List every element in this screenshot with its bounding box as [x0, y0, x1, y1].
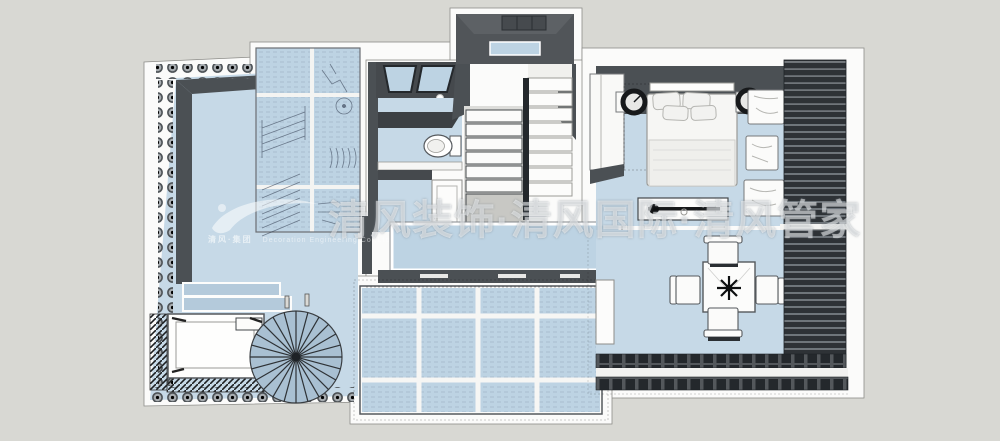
stairwell [452, 14, 576, 228]
dining-room [588, 230, 850, 396]
dining-console [596, 280, 614, 344]
bed-icon [647, 83, 737, 186]
floorplan-render: 清风·集团 Decoration Engineering Co.,Ltd 清风装… [0, 0, 1000, 441]
floorplan-canvas [0, 0, 1000, 441]
tv-console-icon [638, 198, 728, 220]
stair-flight-left [464, 106, 526, 228]
closet [256, 48, 360, 236]
stair-skylight [490, 42, 540, 55]
bedroom-louvers [784, 60, 846, 227]
bedroom-dining-wall [780, 224, 850, 230]
bedroom [590, 60, 850, 230]
sunroom [354, 280, 608, 420]
hall [362, 216, 622, 287]
dining-table-icon [703, 262, 755, 312]
toilet-icon [424, 135, 461, 157]
deck-platform [150, 314, 264, 392]
stair-rail [523, 78, 529, 220]
stair-flight-right [528, 64, 572, 196]
terrace-wall-left [176, 80, 192, 284]
terrace-steps [183, 283, 291, 311]
nightstand-lamp-left [616, 91, 645, 113]
bathroom [368, 62, 462, 232]
slat-band [596, 354, 848, 390]
hall-glass-panel [392, 224, 620, 270]
bedroom-chairs [744, 90, 784, 216]
